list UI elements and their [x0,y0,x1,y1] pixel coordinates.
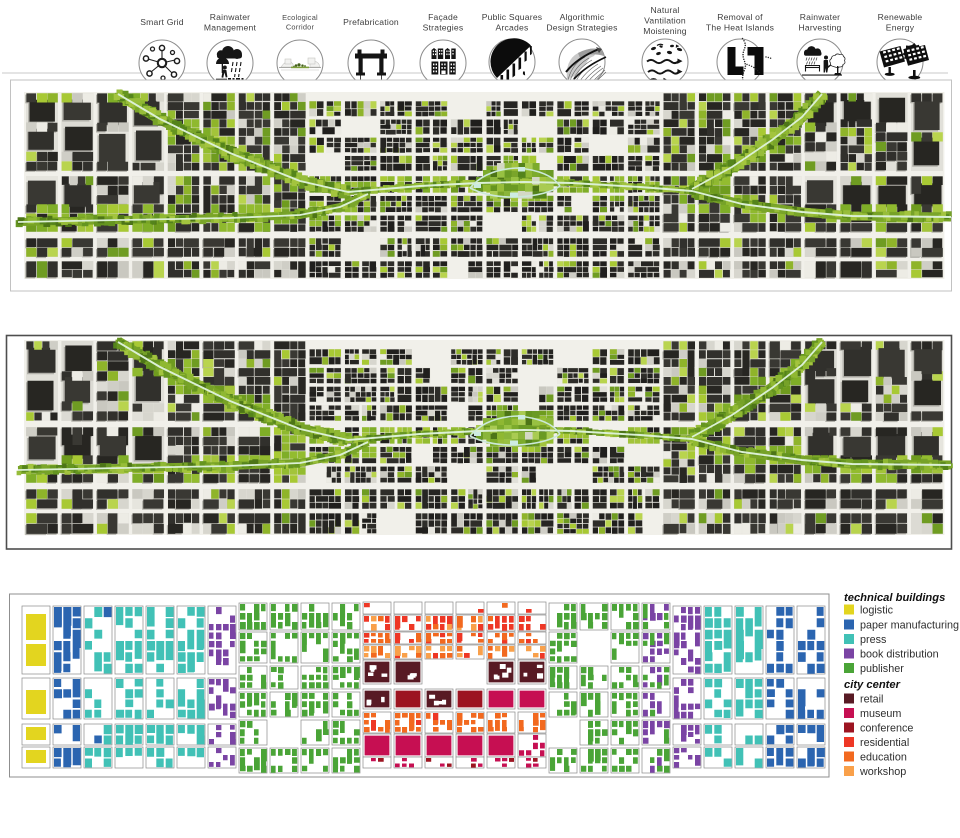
svg-text:paper manufacturing: paper manufacturing [860,620,959,632]
svg-text:Corridor: Corridor [286,23,315,32]
svg-text:Rainwater: Rainwater [800,12,841,22]
svg-text:Public Squares: Public Squares [482,12,543,22]
svg-text:Moistening: Moistening [643,26,687,36]
svg-text:workshop: workshop [859,766,906,778]
svg-text:Arcades: Arcades [496,23,529,33]
svg-text:The Heat Islands: The Heat Islands [706,23,774,33]
svg-text:Harvesting: Harvesting [798,23,841,33]
svg-text:Prefabrication: Prefabrication [343,17,399,27]
svg-text:press: press [860,634,887,646]
svg-text:Energy: Energy [886,23,915,33]
svg-text:Removal of: Removal of [717,12,763,22]
svg-text:Strategies: Strategies [423,23,464,33]
svg-text:conference: conference [860,723,913,735]
svg-text:Renewable: Renewable [878,12,923,22]
svg-text:city center: city center [844,679,901,691]
svg-text:museum: museum [860,708,901,720]
svg-text:Façade: Façade [428,12,458,22]
svg-text:book distribution: book distribution [860,649,939,661]
svg-text:publisher: publisher [860,663,904,675]
svg-text:Design Strategies: Design Strategies [546,23,617,33]
svg-text:residential: residential [860,737,909,749]
svg-text:Smart Grid: Smart Grid [140,17,184,27]
svg-text:Natural: Natural [650,5,679,15]
svg-text:logistic: logistic [860,605,894,617]
svg-text:Management: Management [204,23,257,33]
svg-text:Ecological: Ecological [282,13,318,22]
svg-text:retail: retail [860,694,883,706]
svg-text:Vantilation: Vantilation [644,16,686,26]
svg-text:Rainwater: Rainwater [210,12,251,22]
svg-text:education: education [860,752,907,764]
svg-text:Algorithmic: Algorithmic [560,12,605,22]
svg-text:technical buildings: technical buildings [844,592,945,604]
